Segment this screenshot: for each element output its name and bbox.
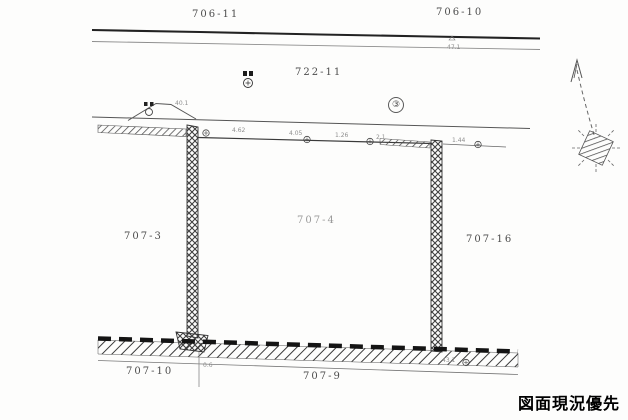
road-middle — [92, 102, 530, 137]
circled-point-number: ③ — [388, 97, 404, 113]
annotation-bottom-right: 43.1 — [442, 357, 455, 364]
annotation-bump: 40.1 — [175, 100, 188, 107]
parcel-label-707-4: 707-4 — [297, 215, 336, 226]
boundary-hatch — [380, 139, 430, 149]
annotation-distance: 4.05 — [289, 130, 302, 137]
stamp-text: 図面現況優先 — [518, 390, 620, 414]
annotation-distance: 1.26 — [335, 132, 348, 139]
parcel-label-722-11: 722-11 — [295, 67, 342, 78]
wall-right — [431, 140, 442, 352]
stamp-symbol — [243, 71, 253, 88]
tiny-glyph-stamp — [144, 102, 148, 106]
road-top — [92, 30, 540, 50]
tiny-glyph-stamp — [150, 102, 154, 106]
north-arrow — [570, 60, 622, 174]
map-canvas: 706-11 706-10 722-11 707-3 707-4 707-16 … — [0, 0, 628, 420]
parcel-label-707-9: 707-9 — [303, 371, 342, 382]
survey-marker — [304, 136, 310, 142]
north-arrow-head — [571, 60, 582, 82]
annotation-distance: 1.44 — [452, 137, 465, 144]
annotation-distance: 4.62 — [232, 127, 245, 134]
parcel-label-707-3: 707-3 — [124, 231, 163, 242]
annotation-top-road: 47.1 — [447, 44, 460, 51]
pole-icon — [146, 109, 153, 116]
compass-rose — [570, 122, 622, 174]
parcel-label-706-11: 706-11 — [192, 9, 239, 20]
wall-left — [176, 125, 208, 352]
parcel-label-707-16: 707-16 — [466, 234, 513, 245]
parcel-label-706-10: 706-10 — [436, 7, 483, 18]
annotation-bottom-left: 0.6 — [203, 362, 213, 369]
parcel-label-707-10: 707-10 — [126, 366, 173, 377]
survey-marker — [203, 130, 209, 136]
annotation-distance: 2.1 — [376, 134, 386, 141]
road-verge-hatch — [98, 125, 186, 137]
survey-drawing — [0, 0, 628, 420]
survey-marker — [475, 141, 481, 147]
